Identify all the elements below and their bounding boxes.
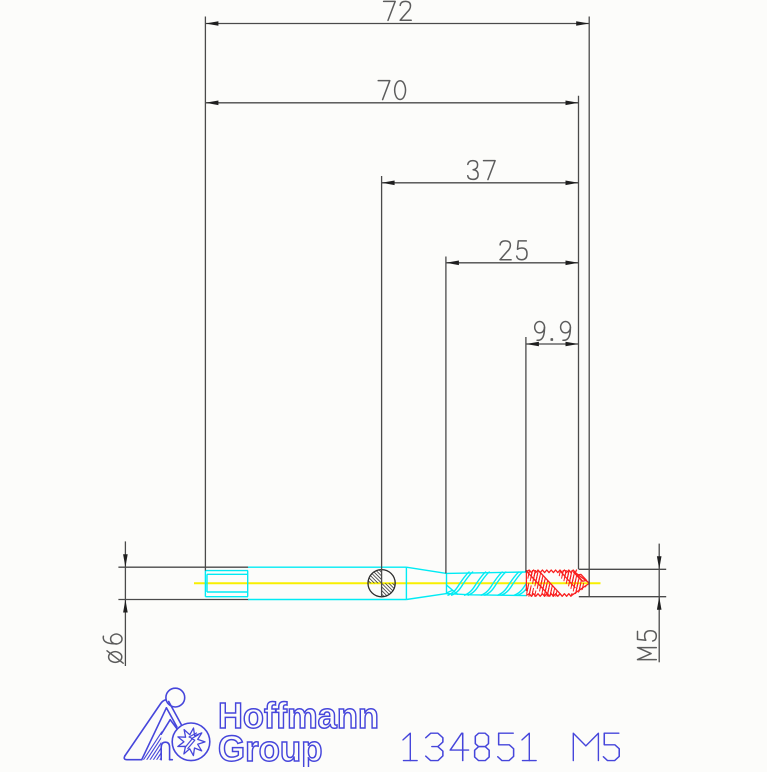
svg-text:Group: Group [218, 728, 323, 767]
